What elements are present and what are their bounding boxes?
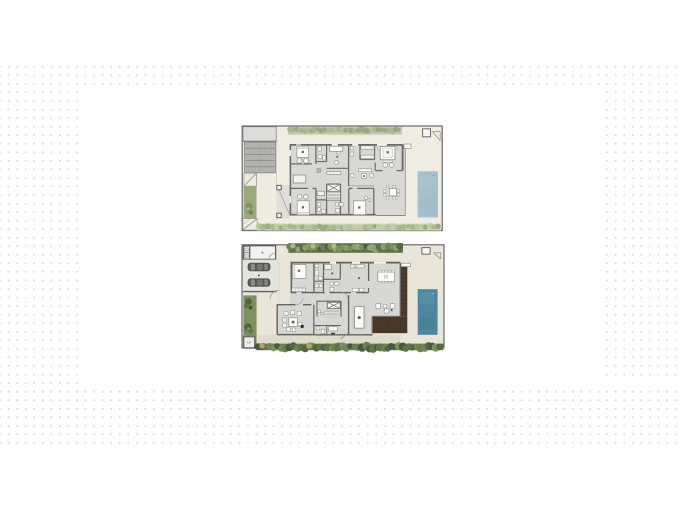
svg-text:LP: LP <box>247 341 251 345</box>
